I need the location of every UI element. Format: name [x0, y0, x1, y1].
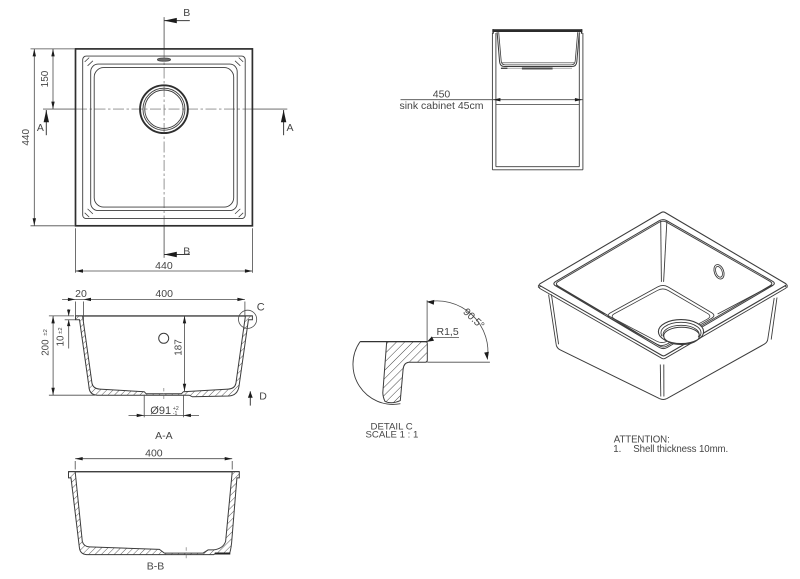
svg-text:440: 440: [155, 260, 173, 272]
svg-text:20: 20: [75, 288, 87, 300]
svg-text:450: 450: [433, 89, 451, 101]
svg-text:B-B: B-B: [147, 561, 165, 573]
svg-text:-1: -1: [173, 411, 178, 417]
svg-text:A: A: [37, 122, 44, 134]
svg-text:±2: ±2: [43, 329, 49, 335]
svg-text:400: 400: [145, 447, 163, 459]
svg-text:150: 150: [40, 70, 51, 87]
svg-text:R1,5: R1,5: [437, 326, 459, 338]
svg-text:Shell thickness 10mm.: Shell thickness 10mm.: [633, 444, 728, 455]
svg-text:Ø91: Ø91: [150, 405, 171, 417]
svg-text:B: B: [183, 7, 190, 19]
svg-text:B: B: [183, 245, 190, 257]
svg-text:440: 440: [21, 129, 32, 146]
svg-text:±2: ±2: [58, 327, 64, 333]
svg-text:SCALE 1 : 1: SCALE 1 : 1: [366, 430, 419, 441]
svg-text:400: 400: [155, 288, 173, 300]
svg-text:C: C: [257, 302, 265, 314]
svg-text:187: 187: [174, 339, 185, 355]
svg-text:A-A: A-A: [155, 430, 173, 442]
svg-text:10: 10: [56, 335, 67, 346]
svg-text:200: 200: [41, 339, 52, 356]
svg-text:sink cabinet 45cm: sink cabinet 45cm: [399, 100, 483, 112]
svg-text:1.: 1.: [613, 444, 621, 455]
svg-text:A: A: [287, 122, 294, 134]
svg-text:D: D: [259, 391, 267, 403]
